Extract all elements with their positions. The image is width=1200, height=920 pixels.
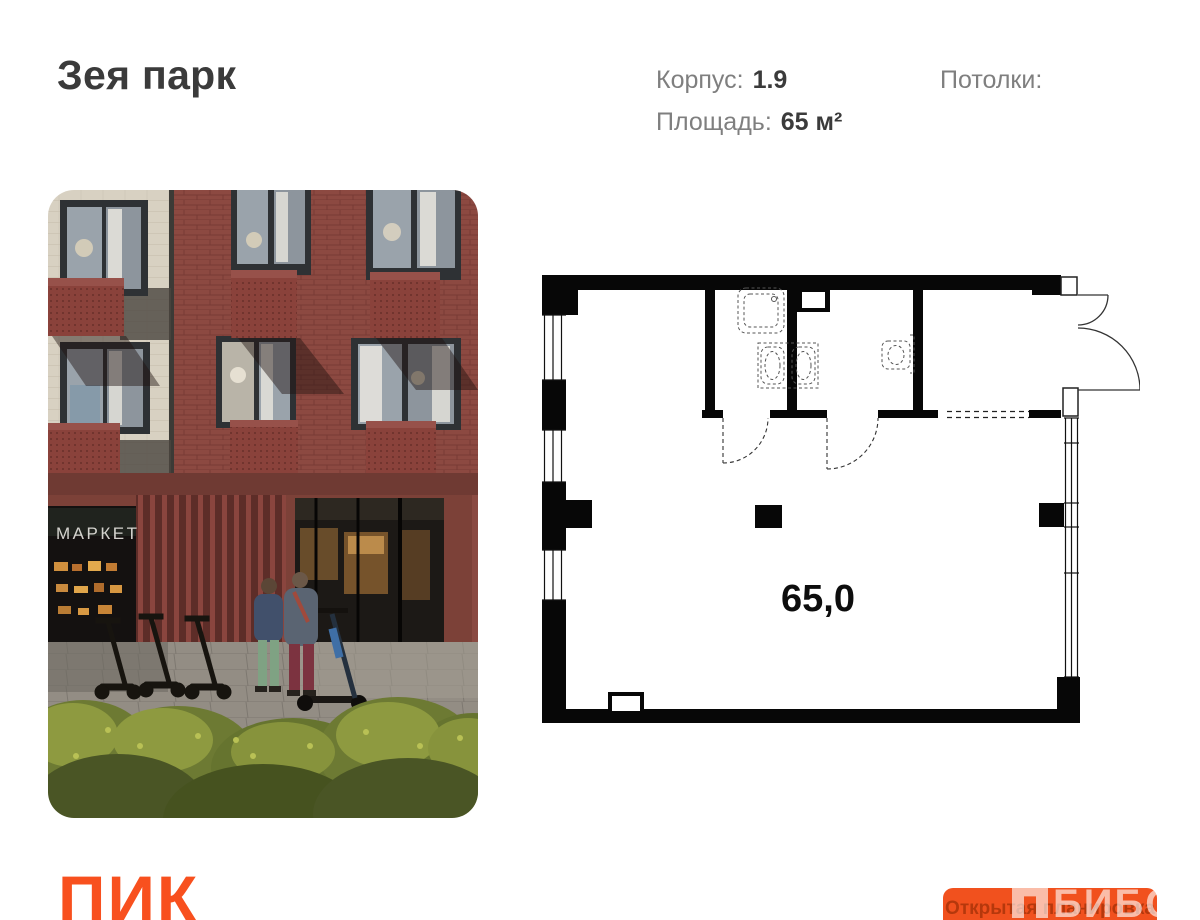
spec-ceilings: Потолки: [940,66,1051,95]
building-photo: МАРКЕТ [48,190,478,818]
floor-plan-walls [542,275,1080,723]
open-plan-button-label: Открытая планировка [945,898,1155,919]
floor-plan-svg: 65,0 [540,273,1140,723]
listing-page: Зея парк Корпус:1.9 Площадь:65 м² Потолк… [0,0,1200,920]
pik-logo: ПИК [58,866,199,920]
korpus-label: Корпус: [656,66,744,94]
window [231,190,311,275]
floor-plan: 65,0 [540,273,1140,728]
open-plan-button[interactable]: Открытая планировка [943,888,1157,920]
area-figure-label: 65,0 [781,578,855,620]
area-value: 65 м² [781,108,843,136]
page-title: Зея парк [57,52,236,99]
right-glazing [1064,418,1079,677]
bottom-niche [610,694,642,713]
left-windows [542,315,566,600]
korpus-value: 1.9 [753,66,788,94]
window [366,190,461,280]
dashed-partition [947,412,1029,418]
entrance-door-swing [1078,295,1140,390]
spec-korpus: Корпус:1.9 [656,66,787,95]
ceilings-label: Потолки: [940,66,1042,94]
vent-shaft [802,292,825,308]
entrance-door [1061,277,1078,416]
storefront-sign: МАРКЕТ [56,524,139,543]
area-label: Площадь: [656,108,772,136]
spec-area: Площадь:65 м² [656,108,842,137]
building-photo-svg: МАРКЕТ [48,190,478,818]
bathroom-door-swings [723,418,878,469]
